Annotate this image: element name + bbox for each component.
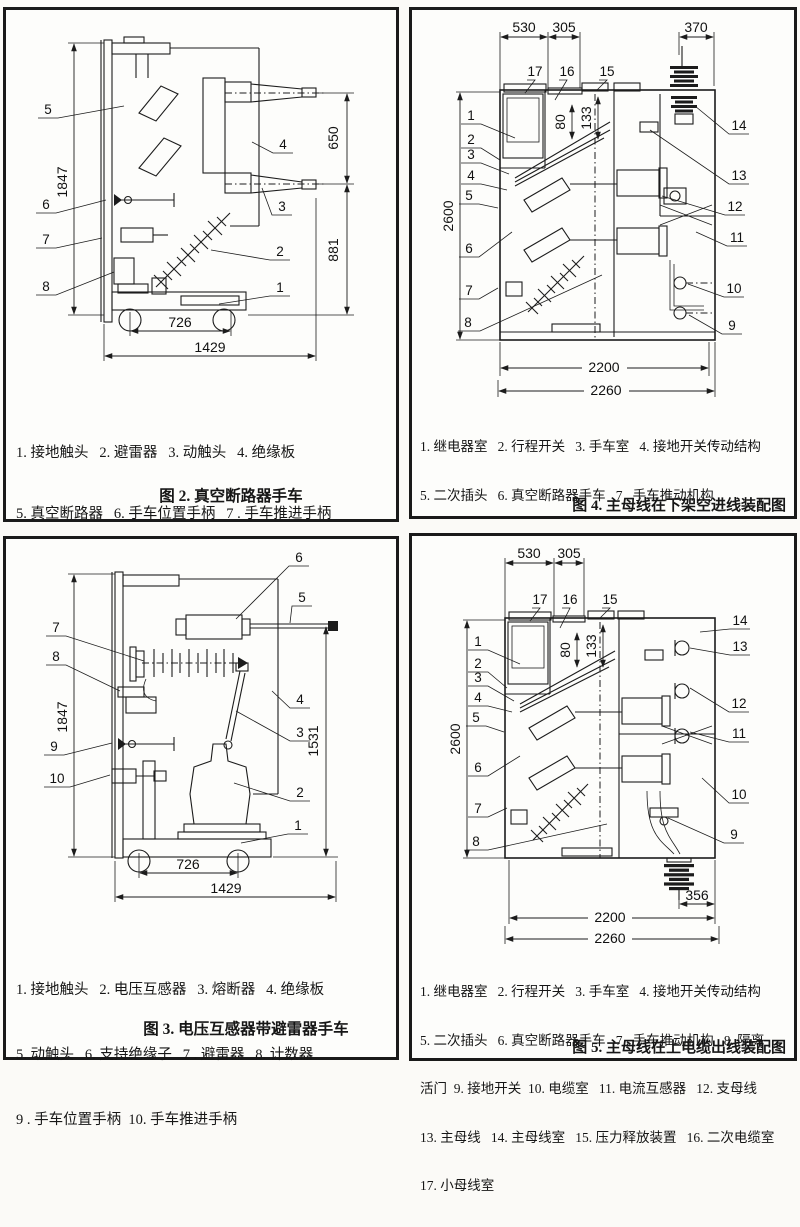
- fig5-ribbed-insulator: [531, 784, 588, 842]
- fig2-counter: [114, 258, 148, 293]
- svg-text:11: 11: [732, 726, 746, 741]
- svg-text:2200: 2200: [594, 909, 625, 925]
- panel-fig4: 530 305 370: [409, 7, 797, 519]
- svg-text:80: 80: [552, 114, 568, 130]
- svg-text:10: 10: [731, 787, 746, 802]
- svg-text:16: 16: [559, 64, 574, 79]
- svg-text:13: 13: [732, 639, 747, 654]
- fig3-arrester: [130, 647, 248, 701]
- svg-text:7: 7: [42, 232, 50, 247]
- svg-text:2: 2: [467, 132, 475, 147]
- svg-text:356: 356: [685, 887, 709, 903]
- svg-text:881: 881: [325, 238, 341, 262]
- svg-text:17: 17: [527, 64, 542, 79]
- fig2-arm-upper: [139, 86, 178, 121]
- svg-text:7: 7: [465, 283, 473, 298]
- fig3-callouts: 6 5 7 8 9 10 4 3 2 1: [44, 550, 312, 843]
- fig3-handles: [112, 687, 174, 839]
- svg-text:4: 4: [467, 168, 475, 183]
- svg-text:3: 3: [467, 147, 475, 162]
- svg-text:8: 8: [42, 279, 50, 294]
- svg-text:1429: 1429: [194, 339, 225, 355]
- fig5-dims-bottom: 356 2200 2260: [505, 860, 719, 946]
- fig3-dim-height: 1847: [54, 574, 115, 857]
- legend-line: 1. 继电器室 2. 行程开关 3. 手车室 4. 接地开关传动结构: [420, 438, 788, 455]
- svg-text:14: 14: [732, 613, 748, 628]
- fig2-frontplate: [101, 40, 112, 322]
- fig2-dim-650: 650: [318, 93, 354, 184]
- svg-text:726: 726: [176, 856, 200, 872]
- fig2-dim-881: 881: [248, 185, 354, 315]
- fig5-cabinet: [505, 611, 715, 858]
- panel-fig3: 1847: [3, 536, 399, 1060]
- svg-text:8: 8: [464, 315, 472, 330]
- fig2-dim-height: 1847: [54, 43, 104, 315]
- panel-fig5: 530 305: [409, 533, 797, 1061]
- svg-text:1: 1: [474, 634, 482, 649]
- fig3-vt-body: [178, 744, 266, 839]
- fig3-contact-rod: [250, 621, 338, 631]
- svg-text:4: 4: [296, 692, 304, 707]
- fig5-breaker-poles: [575, 696, 670, 784]
- svg-text:133: 133: [578, 106, 594, 130]
- legend-line: 1. 继电器室 2. 行程开关 3. 手车室 4. 接地开关传动结构: [420, 984, 788, 1001]
- fig2-insulation-plate: [170, 48, 259, 226]
- fig2-arrester-insulator: [152, 213, 230, 294]
- legend-line: 1. 接地触头 2. 电压互感器 3. 熔断器 4. 绝缘板: [16, 975, 324, 1006]
- svg-text:3: 3: [296, 725, 304, 740]
- fig5-callouts: 17 16 15 1 2 3 4 5 6 7 8 14 13 12 11 10 …: [466, 592, 750, 850]
- svg-text:9: 9: [730, 827, 738, 842]
- fig4-floor-details: [506, 282, 600, 332]
- svg-text:7: 7: [474, 801, 482, 816]
- fig2-upper-bushing: [225, 82, 326, 102]
- svg-text:8: 8: [52, 649, 60, 664]
- svg-text:1429: 1429: [210, 880, 241, 896]
- svg-text:17: 17: [532, 592, 547, 607]
- svg-text:15: 15: [599, 64, 614, 79]
- panel-fig2: 1847: [3, 7, 399, 522]
- svg-text:9: 9: [728, 318, 736, 333]
- svg-text:4: 4: [474, 690, 482, 705]
- svg-text:305: 305: [557, 545, 581, 561]
- svg-text:10: 10: [726, 281, 741, 296]
- fig3-dim-1531: 1531: [273, 626, 338, 857]
- fig2-dim-726: 726: [130, 312, 231, 336]
- svg-text:1: 1: [294, 818, 302, 833]
- fig4-incoming-bushing: [670, 46, 698, 124]
- svg-text:16: 16: [562, 592, 577, 607]
- svg-text:530: 530: [517, 545, 541, 561]
- fig2-drawing: 1847: [6, 10, 396, 402]
- fig4-linkage: [515, 122, 658, 186]
- fig3-drawing: 1847: [6, 539, 396, 939]
- svg-text:14: 14: [731, 118, 747, 133]
- fig2-position-handle: [114, 193, 174, 207]
- svg-text:3: 3: [474, 670, 482, 685]
- legend-line: 5. 动触头 6. 支持绝缘子 7 . 避雷器 8. 计数器: [16, 1040, 324, 1071]
- svg-text:2: 2: [296, 785, 304, 800]
- svg-text:5: 5: [465, 188, 473, 203]
- fig5-cables: [647, 791, 680, 854]
- fig5-dims-inner: 80 133: [557, 625, 603, 667]
- svg-text:370: 370: [684, 19, 708, 35]
- fig3-legend: 1. 接地触头 2. 电压互感器 3. 熔断器 4. 绝缘板 5. 动触头 6.…: [16, 941, 324, 1170]
- svg-text:530: 530: [512, 19, 536, 35]
- svg-text:1847: 1847: [54, 701, 70, 732]
- svg-text:11: 11: [730, 230, 744, 245]
- svg-text:2: 2: [474, 656, 482, 671]
- svg-text:5: 5: [44, 102, 52, 117]
- legend-line: 17. 小母线室: [420, 1178, 788, 1195]
- fig5-dims-top: 530 305: [505, 545, 584, 618]
- svg-text:6: 6: [42, 197, 50, 212]
- svg-text:6: 6: [474, 760, 482, 775]
- fig4-drawing: 530 305 370: [412, 10, 794, 402]
- fig4-dim-height: 2600: [440, 92, 500, 340]
- fig2-arm-lower: [139, 138, 181, 176]
- fig4-right-components: [664, 188, 715, 319]
- fig4-caption: 图 4. 主母线在下架空进线装配图: [572, 494, 786, 515]
- svg-text:15: 15: [602, 592, 617, 607]
- fig4-callouts: 17 16 15 1 2 3 4 5 6 7 8 14 13 12 11 10 …: [458, 64, 749, 334]
- svg-text:1: 1: [467, 108, 475, 123]
- fig5-bus-supports: [675, 640, 689, 744]
- fig5-legend: 1. 继电器室 2. 行程开关 3. 手车室 4. 接地开关传动结构 5. 二次…: [420, 952, 788, 1227]
- svg-text:2600: 2600: [447, 723, 463, 754]
- fig4-dims-bottom: 2200 2260: [498, 342, 715, 398]
- fig5-arm-lower: [529, 756, 575, 790]
- svg-text:7: 7: [52, 620, 60, 635]
- svg-text:5: 5: [472, 710, 480, 725]
- svg-text:650: 650: [325, 126, 341, 150]
- fig2-pole-column: [203, 78, 225, 173]
- svg-text:2260: 2260: [594, 930, 625, 946]
- svg-text:10: 10: [49, 771, 64, 786]
- svg-text:2260: 2260: [590, 382, 621, 398]
- fig2-lower-bushing: [225, 173, 326, 193]
- svg-text:80: 80: [557, 642, 573, 658]
- svg-text:12: 12: [727, 199, 742, 214]
- svg-text:1847: 1847: [54, 166, 70, 197]
- fig5-drawing: 530 305: [412, 536, 794, 948]
- svg-text:133: 133: [583, 634, 599, 658]
- fig3-support-insulator: [176, 615, 250, 639]
- svg-text:6: 6: [465, 241, 473, 256]
- fig4-arm-lower: [524, 228, 570, 262]
- svg-text:8: 8: [472, 834, 480, 849]
- fig5-arm-upper: [529, 706, 575, 740]
- fig4-breaker-poles: [570, 168, 667, 256]
- legend-line: 13. 主母线 14. 主母线室 15. 压力释放装置 16. 二次电缆室: [420, 1130, 788, 1147]
- svg-text:13: 13: [731, 168, 746, 183]
- fig5-relay-room: [508, 622, 548, 684]
- svg-text:6: 6: [295, 550, 303, 565]
- legend-line: 9 . 手车位置手柄 10. 手车推进手柄: [16, 1105, 324, 1136]
- svg-text:305: 305: [552, 19, 576, 35]
- fig4-relay-room: [503, 94, 543, 158]
- fig4-arm-upper: [524, 178, 570, 212]
- svg-text:2200: 2200: [588, 359, 619, 375]
- svg-text:1: 1: [276, 280, 284, 295]
- fig2-push-handle: [121, 228, 168, 242]
- svg-text:12: 12: [731, 696, 746, 711]
- fig2-top-plate: [112, 37, 170, 78]
- svg-text:9: 9: [50, 739, 58, 754]
- fig5-caption: 图 5. 主母线在上电缆出线装配图: [572, 1036, 786, 1057]
- svg-text:3: 3: [278, 199, 286, 214]
- svg-text:5: 5: [298, 590, 306, 605]
- fig3-caption: 图 3. 电压互感器带避雷器手车: [6, 1017, 396, 1039]
- svg-text:2600: 2600: [440, 200, 456, 231]
- svg-text:726: 726: [168, 314, 192, 330]
- fig2-caption: 图 2. 真空断路器手车: [6, 484, 396, 506]
- fig5-floor-details: [511, 810, 612, 856]
- legend-line: 活门 9. 接地开关 10. 电缆室 11. 电流互感器 12. 支母线: [420, 1081, 788, 1098]
- svg-text:4: 4: [279, 137, 287, 152]
- fig3-fuse-link: [224, 663, 248, 749]
- fig5-linkage: [520, 650, 663, 712]
- fig2-callouts: 5 6 7 8 4 3 2 1: [36, 102, 293, 304]
- fig4-ribbed-insulator: [526, 256, 584, 314]
- legend-line: 1. 接地触头 2. 避雷器 3. 动触头 4. 绝缘板: [16, 440, 331, 467]
- svg-text:2: 2: [276, 244, 284, 259]
